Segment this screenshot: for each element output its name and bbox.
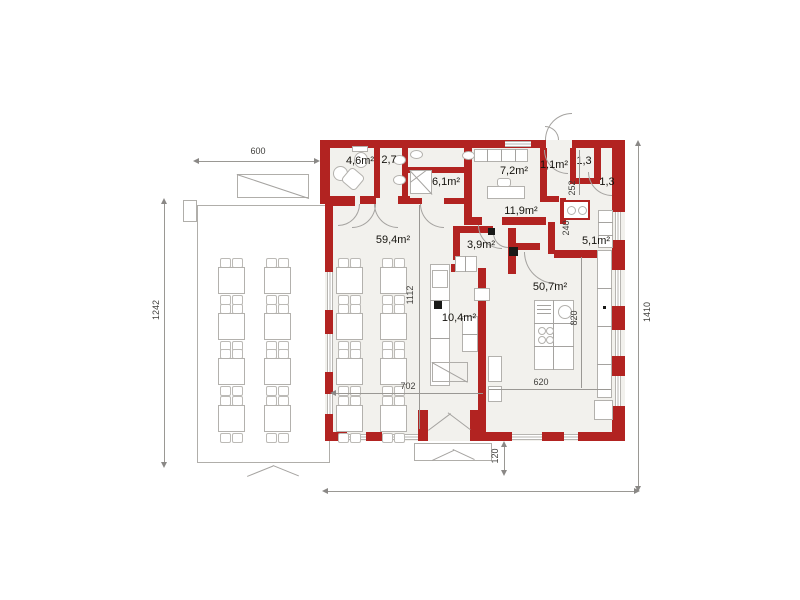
dimension-label: 1112 bbox=[405, 286, 415, 305]
dining-table-group bbox=[218, 304, 245, 349]
dining-table-group bbox=[264, 396, 291, 441]
room-area-label: 59,4m² bbox=[376, 234, 410, 246]
table bbox=[380, 313, 407, 340]
dimension-label: 1410 bbox=[642, 302, 652, 322]
table bbox=[336, 405, 363, 432]
dimension-arrow bbox=[322, 488, 328, 494]
dimension-label: 1242 bbox=[151, 300, 161, 320]
chair bbox=[220, 433, 231, 443]
dimension-label: 240 bbox=[561, 220, 571, 235]
room-area-label: 1,1m² bbox=[540, 159, 568, 171]
table bbox=[264, 313, 291, 340]
table bbox=[218, 267, 245, 294]
table bbox=[264, 358, 291, 385]
table bbox=[264, 405, 291, 432]
table bbox=[380, 267, 407, 294]
chair bbox=[232, 386, 243, 396]
floor-plan: 4,6m² 2,7 6,1m² 7,2m² 1,1m² 1,3 1,3 11,9… bbox=[0, 0, 800, 600]
table bbox=[336, 358, 363, 385]
chair bbox=[350, 433, 361, 443]
dimension-line bbox=[579, 150, 580, 195]
dining-table-group bbox=[218, 396, 245, 441]
dimension-label: 120 bbox=[490, 448, 500, 463]
dining-table-group bbox=[218, 258, 245, 303]
chair bbox=[350, 386, 361, 396]
dimension-arrow bbox=[161, 198, 167, 204]
room-area-label: 7,2m² bbox=[500, 165, 528, 177]
room-area-label: 11,9m² bbox=[504, 205, 537, 217]
dimension-label: 600 bbox=[250, 146, 265, 156]
dimension-label: 702 bbox=[400, 381, 415, 391]
dimension-line bbox=[198, 161, 318, 162]
dining-table-group bbox=[336, 396, 363, 441]
dimension-line bbox=[489, 389, 611, 390]
chair bbox=[338, 433, 349, 443]
dimension-arrow bbox=[501, 470, 507, 476]
dining-table-group bbox=[336, 304, 363, 349]
chair bbox=[382, 433, 393, 443]
dining-table-group bbox=[380, 258, 407, 303]
table bbox=[264, 267, 291, 294]
room-area-label: 6,1m² bbox=[432, 176, 460, 188]
table bbox=[218, 358, 245, 385]
room-area-label: 50,7m² bbox=[533, 281, 567, 293]
dimension-arrow bbox=[193, 158, 199, 164]
room-area-label: 3,9m² bbox=[467, 239, 495, 251]
dining-table-group bbox=[380, 304, 407, 349]
dining-table-group bbox=[264, 304, 291, 349]
dimension-line bbox=[581, 257, 582, 388]
dimension-line bbox=[419, 205, 420, 429]
chair bbox=[278, 386, 289, 396]
table bbox=[218, 313, 245, 340]
table bbox=[218, 405, 245, 432]
room-area-label: 10,4m² bbox=[442, 312, 476, 324]
dining-table-group bbox=[264, 349, 291, 394]
dimension-line bbox=[638, 143, 639, 489]
dimension-label: 820 bbox=[569, 310, 579, 325]
dimension-arrow bbox=[635, 140, 641, 146]
chair bbox=[220, 386, 231, 396]
dimension-arrow bbox=[314, 158, 320, 164]
dining-table-group bbox=[336, 258, 363, 303]
room-area-label: 4,6m² bbox=[346, 155, 374, 167]
dining-table-group bbox=[218, 349, 245, 394]
dining-table-group bbox=[380, 396, 407, 441]
dimension-arrow bbox=[330, 390, 336, 396]
table bbox=[336, 313, 363, 340]
room-area-label: 1,3 bbox=[599, 176, 614, 188]
chair bbox=[266, 386, 277, 396]
chair bbox=[338, 386, 349, 396]
dimension-arrow bbox=[501, 441, 507, 447]
table bbox=[380, 405, 407, 432]
room-area-label: 2,7 bbox=[381, 154, 396, 166]
dining-table-group bbox=[264, 258, 291, 303]
dimension-line bbox=[333, 393, 483, 394]
tables-layer bbox=[0, 0, 800, 600]
dimension-arrow bbox=[161, 462, 167, 468]
table bbox=[336, 267, 363, 294]
dimension-arrow bbox=[634, 488, 640, 494]
room-area-label: 5,1m² bbox=[582, 235, 610, 247]
chair bbox=[382, 386, 393, 396]
chair bbox=[266, 433, 277, 443]
chair bbox=[394, 433, 405, 443]
dimension-line bbox=[325, 491, 638, 492]
dimension-label: 252 bbox=[567, 180, 577, 195]
chair bbox=[232, 433, 243, 443]
dining-table-group bbox=[336, 349, 363, 394]
dimension-line bbox=[164, 202, 165, 464]
dimension-label: 620 bbox=[533, 377, 548, 387]
chair bbox=[278, 433, 289, 443]
dimension-line bbox=[504, 444, 505, 472]
